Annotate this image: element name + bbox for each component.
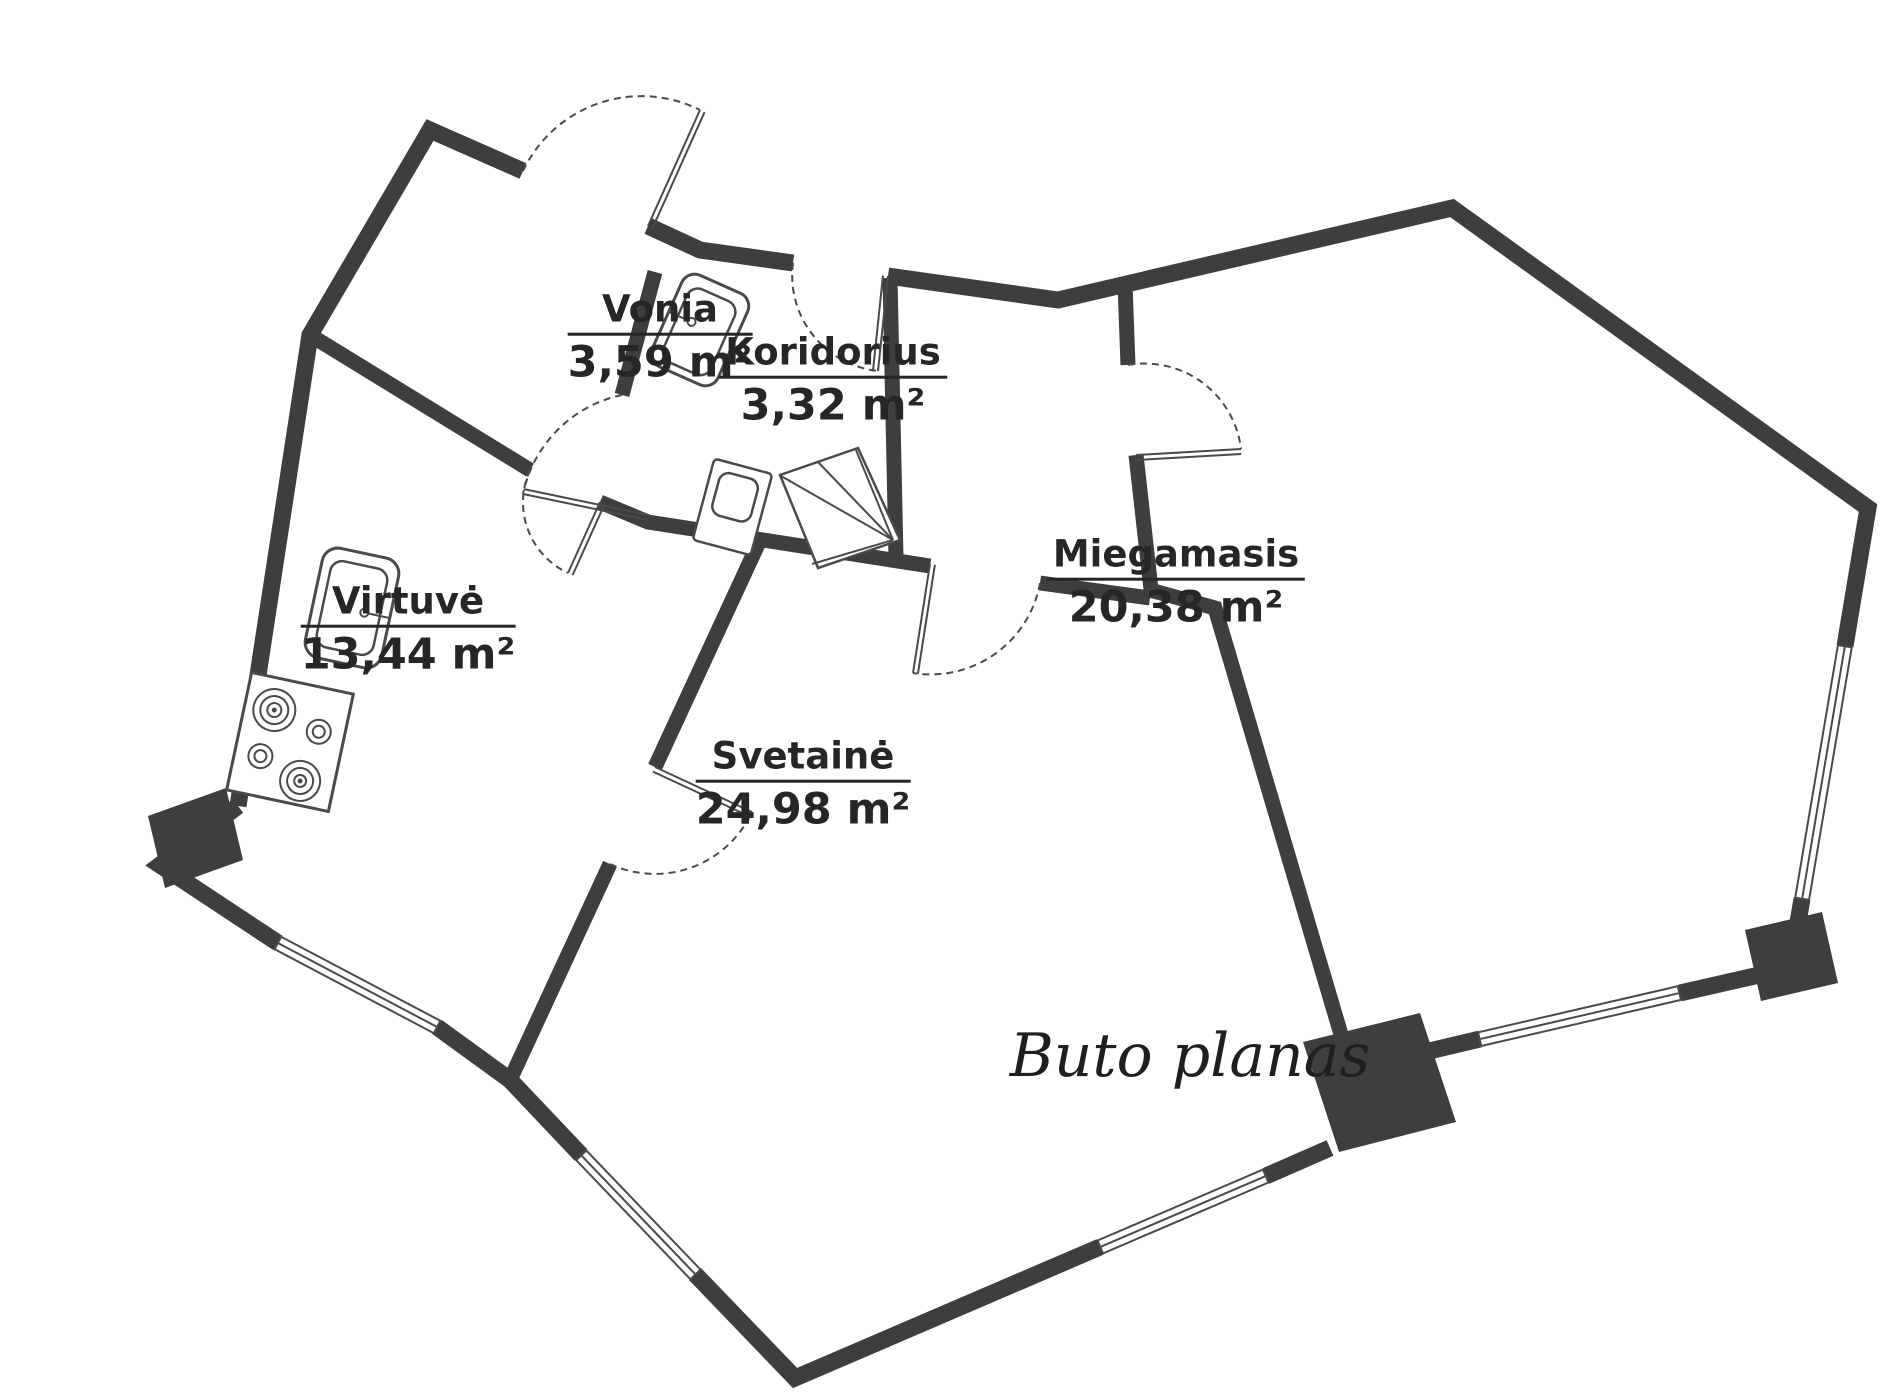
bathroom-door-arc <box>523 395 622 494</box>
floor-plan-page: Vonia 3,59 m² Koridorius 3,32 m² Virtuvė… <box>0 0 1900 1396</box>
kitchen-top-door <box>523 470 605 575</box>
corner-pillar <box>1745 912 1838 1001</box>
window-livingroom-left <box>576 1150 700 1279</box>
room-area: 3,32 m² <box>719 379 947 430</box>
room-name: Virtuvė <box>301 581 516 628</box>
corridor-bedroom-door-arc <box>1128 364 1241 449</box>
room-area: 24,98 m² <box>696 783 911 834</box>
room-label-miegamasis: Miegamasis 20,38 m² <box>1047 534 1305 633</box>
bathroom-door <box>523 395 649 520</box>
room-name: Svetainė <box>696 736 911 783</box>
room-name: Miegamasis <box>1047 534 1305 581</box>
wall-pillars <box>148 788 1838 1152</box>
notch-pillar <box>148 788 243 888</box>
entrance-door-arc <box>523 96 700 171</box>
corridor-livingroom-door <box>913 564 1040 674</box>
corridor-bedroom-door <box>1128 364 1241 460</box>
room-label-svetaine: Svetainė 24,98 m² <box>696 736 911 835</box>
window-kitchen <box>275 937 441 1033</box>
room-name: Vonia <box>568 289 753 336</box>
kitchen-top-door-arc <box>523 470 568 573</box>
room-area: 20,38 m² <box>1047 581 1305 632</box>
floor-plan-canvas <box>0 0 1900 1396</box>
outer-walls <box>160 130 1868 1378</box>
corridor-livingroom-door-arc <box>913 583 1040 674</box>
window-bedroom-bottom <box>1478 986 1681 1046</box>
stove-icon <box>227 672 354 811</box>
room-label-koridorius: Koridorius 3,32 m² <box>719 332 947 431</box>
windows <box>275 645 1852 1279</box>
plan-title: Buto planas <box>1010 1021 1371 1091</box>
room-name: Koridorius <box>719 332 947 379</box>
entrance-door <box>523 96 705 228</box>
window-livingroom-right <box>1098 1170 1269 1254</box>
room-label-virtuve: Virtuvė 13,44 m² <box>301 581 516 680</box>
window-bedroom-right <box>1795 645 1851 900</box>
room-area: 13,44 m² <box>301 628 516 679</box>
